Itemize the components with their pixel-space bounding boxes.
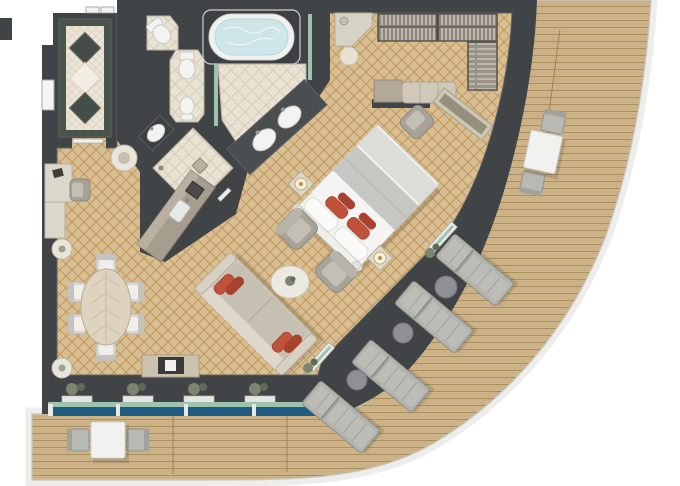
tv-screen xyxy=(165,360,176,371)
table-decor xyxy=(118,152,130,164)
bathtub-water xyxy=(215,19,288,55)
glass-partition xyxy=(214,64,218,126)
deck-table xyxy=(91,422,125,458)
glass-partition xyxy=(308,14,312,80)
shelf-tower xyxy=(468,42,497,90)
deck-side-table xyxy=(393,323,413,343)
deck-chair xyxy=(67,429,89,451)
dining-chair xyxy=(96,343,116,361)
potted-plant xyxy=(303,363,313,373)
potted-plant xyxy=(311,359,318,366)
desk-chair xyxy=(70,179,90,201)
toilet-2 xyxy=(179,52,195,79)
entry-door-leaf xyxy=(86,7,99,13)
desk-drawers xyxy=(374,80,402,102)
deck-chair xyxy=(127,429,149,451)
writing-desk-return xyxy=(45,202,65,238)
suite-floor-plan xyxy=(0,0,680,486)
deck-side-table xyxy=(347,370,367,390)
pedestal-decor xyxy=(59,246,66,253)
deck-side-table xyxy=(435,276,457,298)
lamp-finial xyxy=(378,256,382,260)
vanity-bowl xyxy=(340,17,348,25)
potted-plant xyxy=(433,244,440,251)
entry-door-leaf xyxy=(101,7,114,13)
coffee-table-plant xyxy=(291,277,296,282)
vanity-stool xyxy=(340,47,358,65)
window-mullion xyxy=(252,404,256,416)
corridor-wall-stub xyxy=(0,18,12,40)
window-glazing-band xyxy=(48,407,338,416)
window-mullion xyxy=(116,404,120,416)
entry-hall xyxy=(59,7,114,149)
closet-divider xyxy=(436,14,439,41)
window-mullion xyxy=(48,404,53,416)
service-door xyxy=(42,80,54,110)
lamp-finial xyxy=(299,182,303,186)
deck-chair xyxy=(541,108,567,134)
floor-plan-stage xyxy=(0,0,680,486)
pedestal-decor xyxy=(59,365,66,372)
entry-inner-door-leaf xyxy=(73,139,103,143)
bathtub xyxy=(203,10,300,64)
potted-plant xyxy=(425,248,435,258)
bidet xyxy=(180,97,194,120)
window-mullion xyxy=(184,404,188,416)
shower-head xyxy=(159,166,164,171)
